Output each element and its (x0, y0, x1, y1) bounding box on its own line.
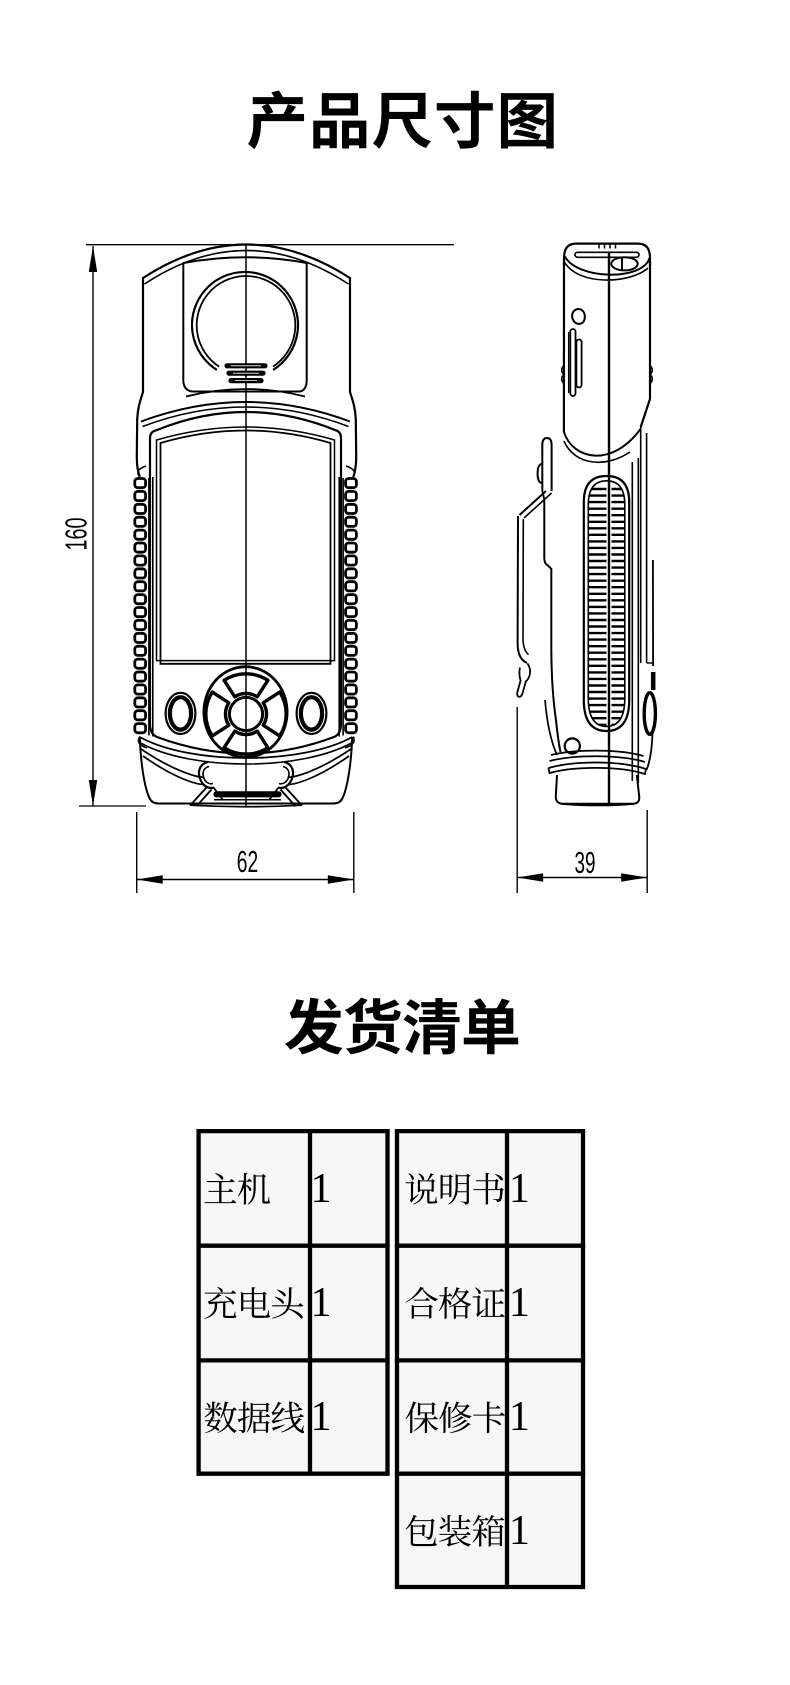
svg-text:1: 1 (311, 1394, 332, 1440)
svg-text:1: 1 (509, 1280, 530, 1326)
svg-text:1: 1 (509, 1508, 530, 1554)
svg-text:1: 1 (311, 1280, 332, 1326)
svg-text:62: 62 (237, 846, 258, 880)
svg-text:160: 160 (58, 517, 94, 550)
svg-text:39: 39 (574, 847, 595, 881)
svg-text:1: 1 (509, 1166, 530, 1212)
svg-text:1: 1 (311, 1166, 332, 1212)
svg-text:1: 1 (509, 1394, 530, 1440)
